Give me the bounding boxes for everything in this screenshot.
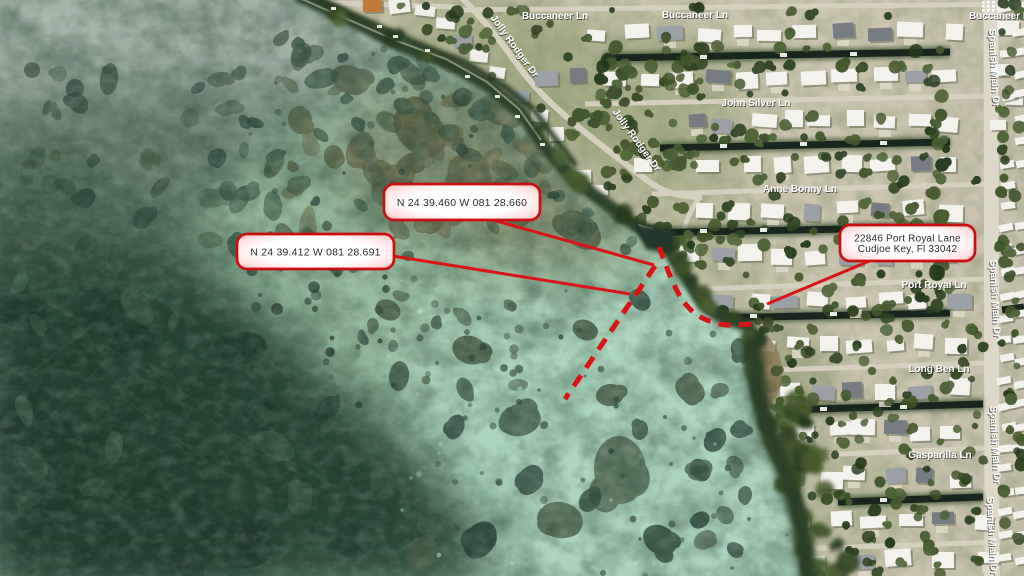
svg-text:N 24 39.412 W 081 28.691: N 24 39.412 W 081 28.691 [250, 246, 380, 258]
svg-text:22846 Port Royal Lane: 22846 Port Royal Lane [854, 233, 961, 244]
svg-text:Cudjoe Key, Fl 33042: Cudjoe Key, Fl 33042 [858, 244, 958, 255]
svg-text:Port Royal Ln: Port Royal Ln [901, 280, 966, 291]
svg-text:Buccaneer Ln: Buccaneer Ln [662, 10, 728, 21]
svg-text:Anne Bonny Ln: Anne Bonny Ln [763, 184, 837, 195]
svg-text:N 24 39.460 W 081 28.660: N 24 39.460 W 081 28.660 [397, 197, 527, 209]
svg-text:Gasparilla Ln: Gasparilla Ln [908, 450, 971, 461]
svg-text:John Silver Ln: John Silver Ln [722, 98, 791, 109]
svg-text:Buccaneer Ln: Buccaneer Ln [522, 11, 588, 22]
svg-text:Image © 2016 Google: Image © 2016 Google [395, 332, 503, 344]
svg-text:Long Ben Ln: Long Ben Ln [908, 364, 969, 375]
svg-text:Buccaneer L: Buccaneer L [969, 11, 1024, 22]
